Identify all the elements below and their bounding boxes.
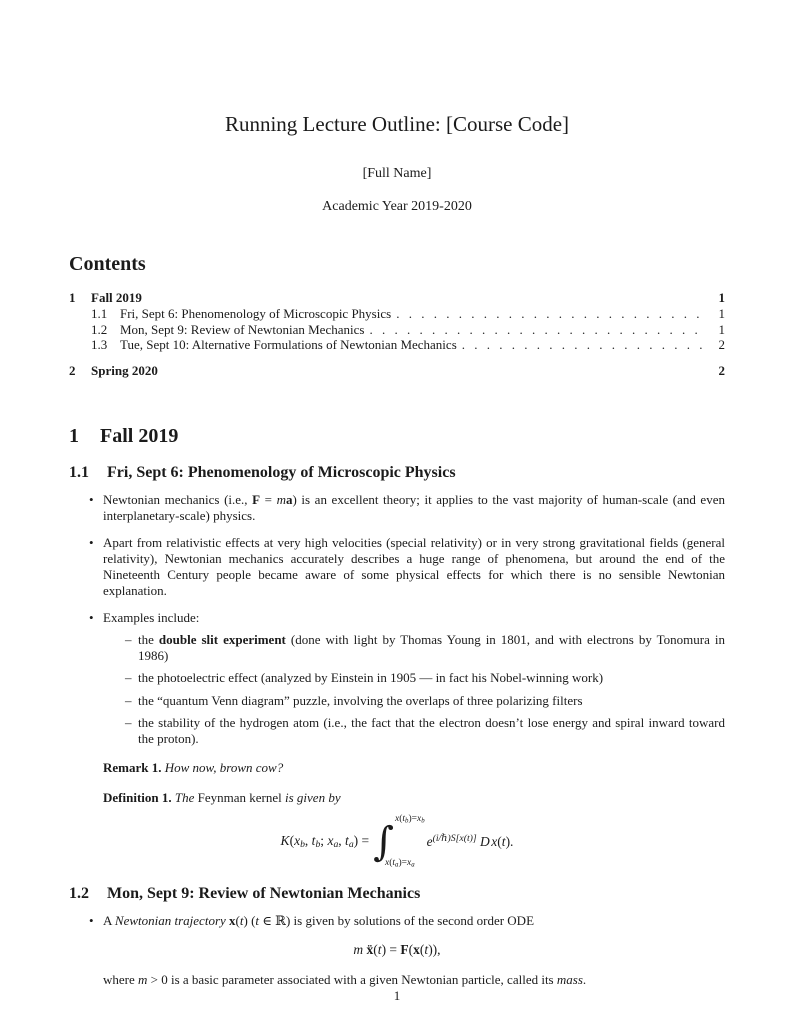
toc-dotted-leader (396, 306, 706, 322)
text-run: double slit experiment (159, 632, 286, 647)
text-run: The (172, 790, 198, 805)
toc-entry-number: 1.3 (91, 337, 120, 353)
text-run: . (583, 972, 586, 987)
bullet-text: Examples include: (103, 610, 199, 625)
text-run: a (411, 861, 414, 868)
text-run: )), (428, 942, 440, 957)
integral-limits: x(tb)=xb x(ta)=xa (394, 815, 425, 869)
toc-heading: Contents (69, 252, 725, 277)
toc-entry-number: 1.2 (91, 322, 120, 338)
integral: ∫ x(tb)=xb x(ta)=xa (373, 815, 424, 869)
text-run: > 0 is a basic parameter associated with… (147, 972, 556, 987)
dash-icon: – (125, 715, 132, 731)
text-run: )= (398, 858, 407, 868)
bullet-icon: • (89, 492, 94, 508)
toc-entry-page: 2 (711, 363, 725, 379)
equation-lhs: K(xb, tb; xa, ta) = (281, 833, 370, 851)
definition-1: Definition 1. The Feynman kernel is give… (103, 790, 725, 806)
dash-icon: – (125, 670, 132, 686)
text-run: = (260, 492, 277, 507)
text-run: m (353, 942, 363, 957)
toc-entry-spring-2020: 2 Spring 2020 2 (69, 363, 725, 379)
text-run: ) = (354, 833, 369, 848)
text-run: ∈ ℝ) is given by solutions of the second… (259, 913, 534, 928)
toc-entry-number: 1 (69, 290, 91, 306)
text-run: mass (557, 972, 583, 987)
sub-item-text: the double slit experiment (done with li… (138, 632, 725, 663)
equation-text: m ẍ(t) = F(x(t)), (353, 942, 440, 959)
subsection-heading-1-1: 1.1 Fri, Sept 6: Phenomenology of Micros… (69, 464, 725, 482)
bullet-icon: • (89, 610, 94, 626)
toc-entry-number: 2 (69, 363, 91, 379)
sub-item-photoelectric: – the photoelectric effect (analyzed by … (138, 670, 725, 686)
text-run: D (480, 834, 490, 849)
sub-item-text: the stability of the hydrogen atom (i.e.… (138, 715, 725, 746)
text-run: is given by (282, 790, 341, 805)
toc-entry-number: 1.1 (91, 306, 120, 322)
remark-1: Remark 1. How now, brown cow? (103, 760, 725, 776)
equation-rhs: e(i/ℏ)S[x(t)] Dx(t). (427, 833, 514, 851)
remark-text: Remark 1. How now, brown cow? (103, 760, 283, 775)
text-run: Definition 1. (103, 790, 172, 805)
bullet-icon: • (89, 913, 94, 929)
integral-upper-limit: x(tb)=xb (395, 815, 425, 825)
subsection-heading-1-2: 1.2 Mon, Sept 9: Review of Newtonian Mec… (69, 885, 725, 903)
text-run: x (413, 942, 420, 957)
bullet-item-newtonian-trajectory: • A Newtonian trajectory x(t) (t ∈ ℝ) is… (103, 913, 725, 929)
sub-item-hydrogen-stability: – the stability of the hydrogen atom (i.… (138, 715, 725, 748)
subsection-title: Fri, Sept 6: Phenomenology of Microscopi… (107, 464, 456, 482)
toc-entry-page: 1 (711, 290, 725, 306)
toc-entry-sept-9: 1.2 Mon, Sept 9: Review of Newtonian Mec… (91, 322, 725, 338)
text-run: ) ( (244, 913, 256, 928)
text-run: where (103, 972, 138, 987)
toc-dotted-leader (462, 337, 706, 353)
dash-icon: – (125, 693, 132, 709)
bullet-text: A Newtonian trajectory x(t) (t ∈ ℝ) is g… (103, 913, 534, 928)
definition-text: Definition 1. The Feynman kernel is give… (103, 790, 341, 805)
paragraph-text: where m > 0 is a basic parameter associa… (103, 972, 586, 987)
subsection-number: 1.2 (69, 885, 107, 903)
page-number: 1 (0, 988, 794, 1004)
text-run: (i/ℏ)S[x(t)] (433, 833, 477, 844)
text-run: )= (408, 814, 417, 824)
subsection-number: 1.1 (69, 464, 107, 482)
text-run: Feynman kernel (198, 790, 282, 805)
toc-dotted-leader (369, 322, 706, 338)
sub-item-double-slit: – the double slit experiment (done with … (138, 632, 725, 665)
integral-lower-limit: x(ta)=xa (385, 859, 425, 869)
subsection-title: Mon, Sept 9: Review of Newtonian Mechani… (107, 885, 420, 903)
section-heading-fall-2019: 1 Fall 2019 (69, 425, 725, 448)
bullet-icon: • (89, 535, 94, 551)
table-of-contents: Contents 1 Fall 2019 1 1.1 Fri, Sept 6: … (69, 252, 725, 379)
bullet-item-relativistic-effects: • Apart from relativistic effects at ver… (103, 535, 725, 600)
text-run: Newtonian trajectory (115, 913, 226, 928)
toc-entry-sept-10: 1.3 Tue, Sept 10: Alternative Formulatio… (91, 337, 725, 353)
sub-item-text: the “quantum Venn diagram” puzzle, invol… (138, 693, 583, 708)
text-run: the (138, 632, 159, 647)
text-run: Newtonian mechanics (i.e., (103, 492, 252, 507)
toc-entry-page: 2 (711, 337, 725, 353)
text-run: Remark 1. (103, 760, 162, 775)
section-title: Fall 2019 (100, 425, 178, 448)
text-run: F (252, 492, 260, 507)
dash-icon: – (125, 632, 132, 648)
text-run: A (103, 913, 115, 928)
toc-entry-label: Fri, Sept 6: Phenomenology of Microscopi… (120, 306, 391, 322)
page-title: Running Lecture Outline: [Course Code] (69, 112, 725, 137)
document-page: Running Lecture Outline: [Course Code] [… (0, 0, 794, 1028)
text-run: F (400, 942, 408, 957)
toc-entry-label: Mon, Sept 9: Review of Newtonian Mechani… (120, 322, 364, 338)
toc-entry-label: Tue, Sept 10: Alternative Formulations o… (120, 337, 457, 353)
text-run: K (281, 833, 290, 848)
text-run: , (305, 833, 312, 848)
toc-entry-page: 1 (711, 306, 725, 322)
text-run: b (421, 817, 424, 824)
toc-entry-label: Fall 2019 (91, 290, 142, 306)
text-run: ) = (382, 942, 401, 957)
text-run: ). (506, 834, 514, 849)
bullet-text: Newtonian mechanics (i.e., F = ma) is an… (103, 492, 725, 523)
bullet-item-examples-include: • Examples include: (103, 610, 725, 626)
sub-item-quantum-venn: – the “quantum Venn diagram” puzzle, inv… (138, 693, 725, 709)
bullet-item-newtonian-mechanics: • Newtonian mechanics (i.e., F = ma) is … (103, 492, 725, 525)
bullet-text: Apart from relativistic effects at very … (103, 535, 725, 599)
text-run: How now, brown cow? (162, 760, 284, 775)
author: [Full Name] (69, 165, 725, 183)
feynman-kernel-equation: K(xb, tb; xa, ta) = ∫ x(tb)=xb x(ta)=xa … (69, 815, 725, 869)
toc-entry-label: Spring 2020 (91, 363, 158, 379)
paragraph-mass-definition: where m > 0 is a basic parameter associa… (103, 972, 725, 988)
date: Academic Year 2019-2020 (69, 198, 725, 216)
sub-item-text: the photoelectric effect (analyzed by Ei… (138, 670, 603, 685)
toc-entry-fall-2019: 1 Fall 2019 1 (69, 290, 725, 306)
section-number: 1 (69, 425, 100, 448)
toc-entry-sept-6: 1.1 Fri, Sept 6: Phenomenology of Micros… (91, 306, 725, 322)
toc-entry-page: 1 (711, 322, 725, 338)
newton-second-law-equation: m ẍ(t) = F(x(t)), (69, 942, 725, 959)
text-run: m (277, 492, 286, 507)
text-run: m (138, 972, 147, 987)
